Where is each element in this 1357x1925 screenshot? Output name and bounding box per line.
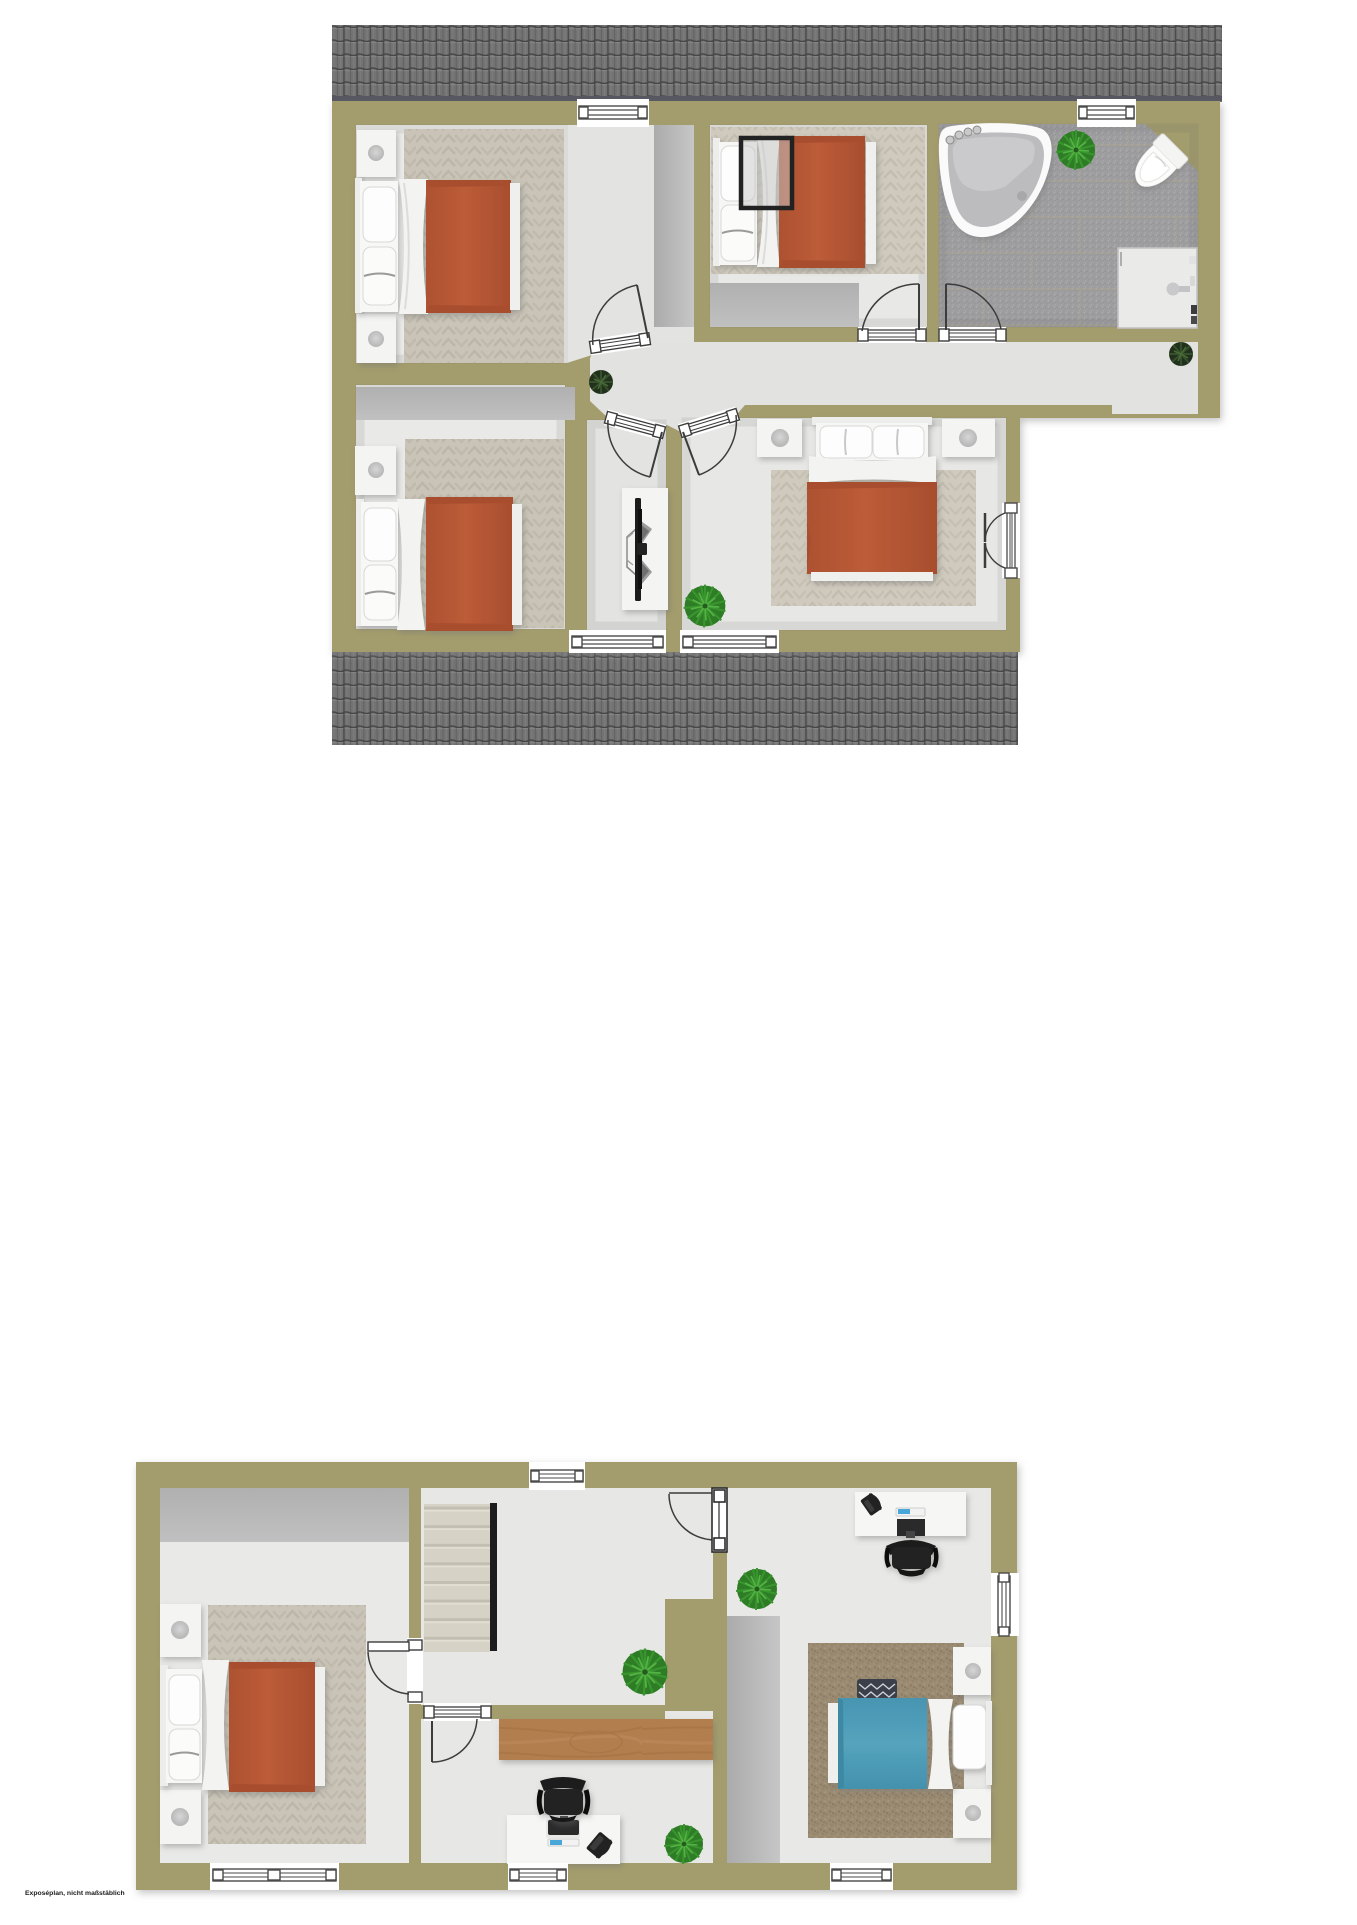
svg-text:Exposéplan, nicht maßstäblich: Exposéplan, nicht maßstäblich (25, 1890, 125, 1897)
